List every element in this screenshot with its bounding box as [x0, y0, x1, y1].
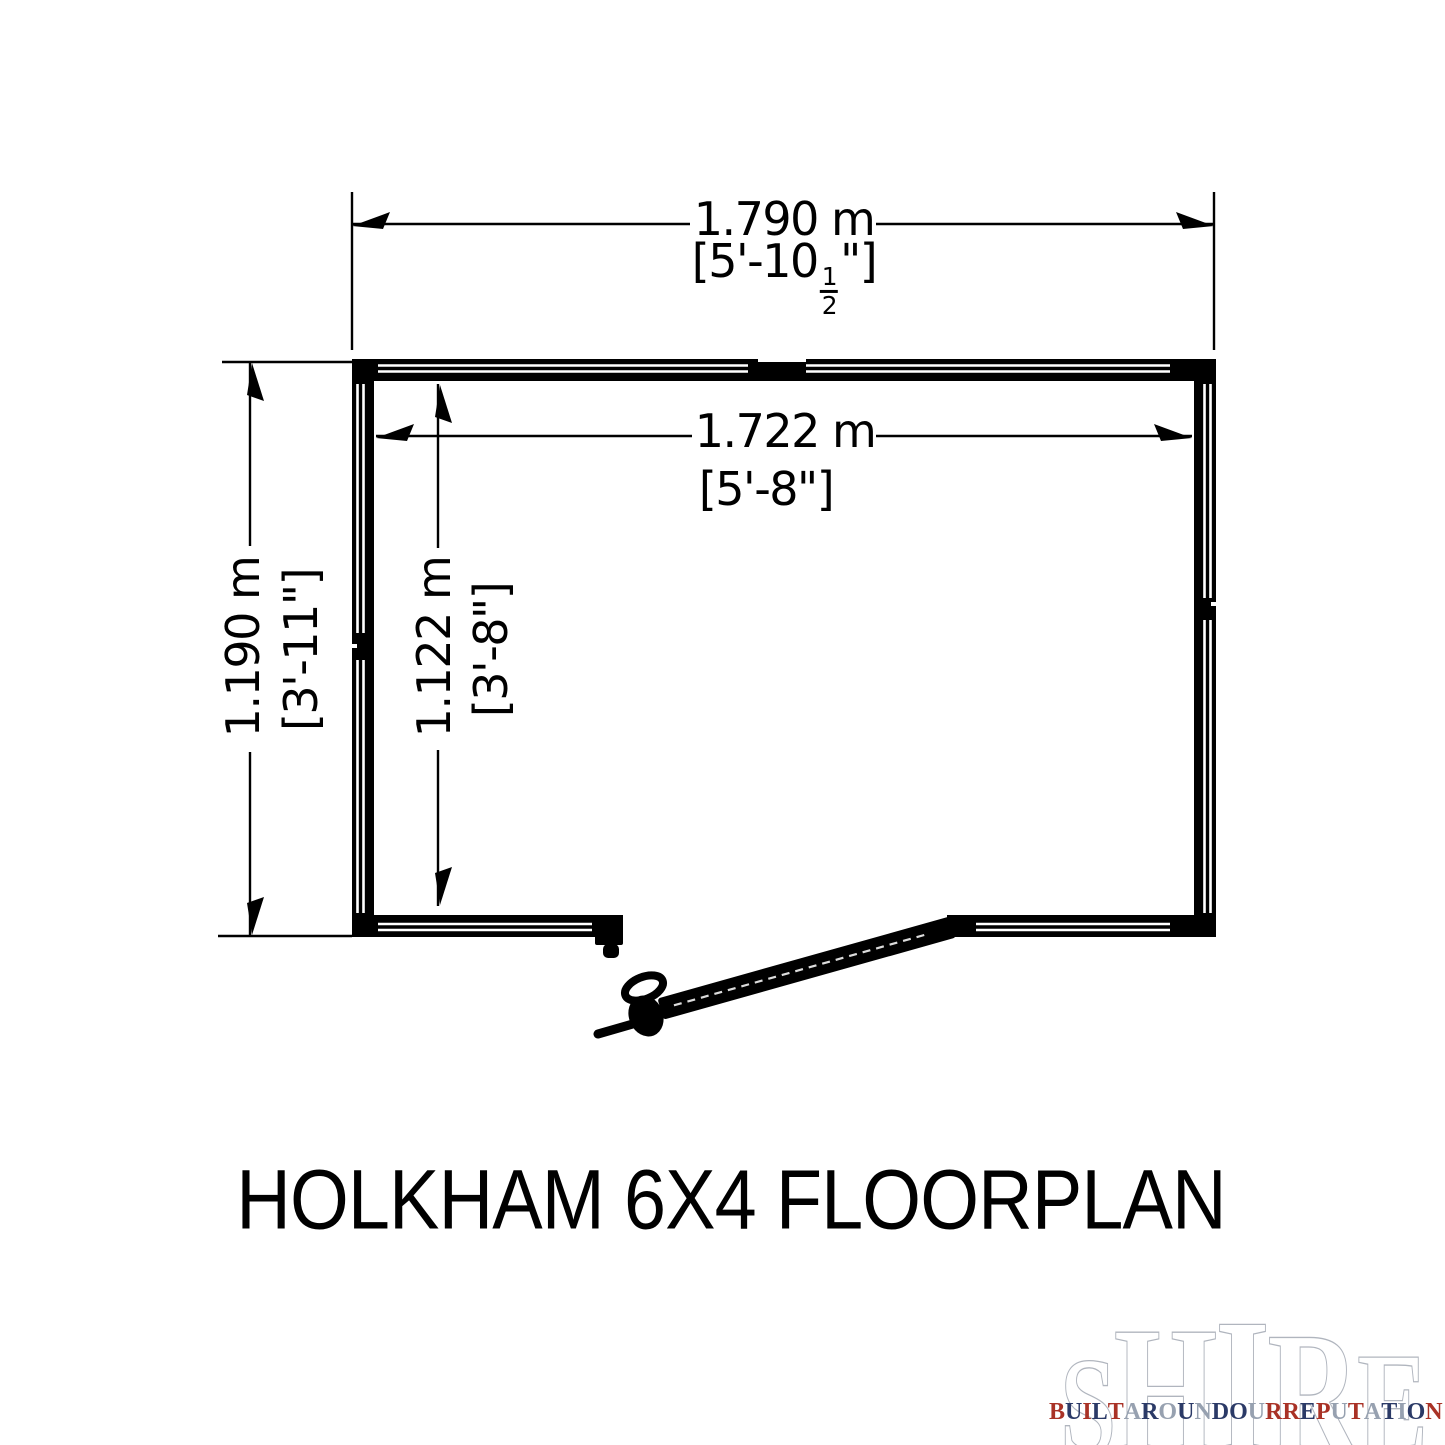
inner-width-metric-label: 1.722 m — [695, 408, 876, 454]
wall-top — [352, 359, 1216, 381]
wall-bottom-right — [947, 915, 1216, 937]
tagline-letter: U — [1065, 1400, 1082, 1424]
tagline-letter: O — [1229, 1400, 1248, 1424]
outer-depth-metric-label: 1.190 m — [220, 557, 266, 738]
tagline-letter: R — [1141, 1400, 1158, 1424]
tagline-letter: R — [1265, 1400, 1282, 1424]
tagline-letter: A — [1364, 1400, 1381, 1424]
inner-width-imperial-label: [5'-8"] — [699, 466, 833, 512]
tagline-letter: B — [1049, 1400, 1065, 1424]
inner-depth-imperial-label: [3'-8"] — [468, 583, 514, 717]
tagline-letter: I — [1397, 1400, 1406, 1424]
tagline-letter: E — [1300, 1400, 1316, 1424]
tagline-letter: U — [1331, 1400, 1348, 1424]
tagline-letter: L — [1092, 1400, 1108, 1424]
half-inch-fraction: 12 — [820, 264, 838, 318]
outer-width-imperial-suffix: "] — [840, 234, 876, 288]
tagline-letter: O — [1407, 1400, 1426, 1424]
door-leaf — [657, 916, 956, 1019]
outer-width-imperial-prefix: [5'-10 — [692, 234, 818, 288]
page-title: HOLKHAM 6X4 FLOORPLAN — [236, 1152, 1225, 1249]
wall-bottom-left — [352, 915, 623, 937]
tagline-letter: R — [1282, 1400, 1299, 1424]
floorplan-page: 1.790 m [5'-1012"] 1.722 m [5'-8"] 1.190… — [0, 0, 1445, 1445]
door-handle-icon — [598, 970, 670, 1042]
tagline-letter: T — [1108, 1400, 1124, 1424]
tagline-letter: N — [1425, 1400, 1442, 1424]
outer-depth-imperial-label: [3'-11"] — [278, 569, 324, 731]
tagline-letter: A — [1124, 1400, 1141, 1424]
tagline-letter: P — [1316, 1400, 1331, 1424]
tagline-letter: O — [1158, 1400, 1177, 1424]
shire-tagline: BUILTAROUNDOURREPUTATION — [1049, 1400, 1439, 1424]
tagline-letter: U — [1177, 1400, 1194, 1424]
inner-depth-metric-label: 1.122 m — [411, 557, 457, 738]
door-stop — [595, 935, 623, 958]
tagline-letter: T — [1348, 1400, 1364, 1424]
tagline-letter: U — [1248, 1400, 1265, 1424]
shire-logo: SHIRE BUILTAROUNDOURREPUTATION — [1048, 1240, 1440, 1426]
door-assembly — [595, 916, 956, 1042]
outer-width-imperial-label: [5'-1012"] — [692, 238, 876, 318]
tagline-letter: T — [1381, 1400, 1397, 1424]
tagline-letter: N — [1194, 1400, 1211, 1424]
tagline-letter: D — [1212, 1400, 1229, 1424]
tagline-letter: I — [1082, 1400, 1091, 1424]
